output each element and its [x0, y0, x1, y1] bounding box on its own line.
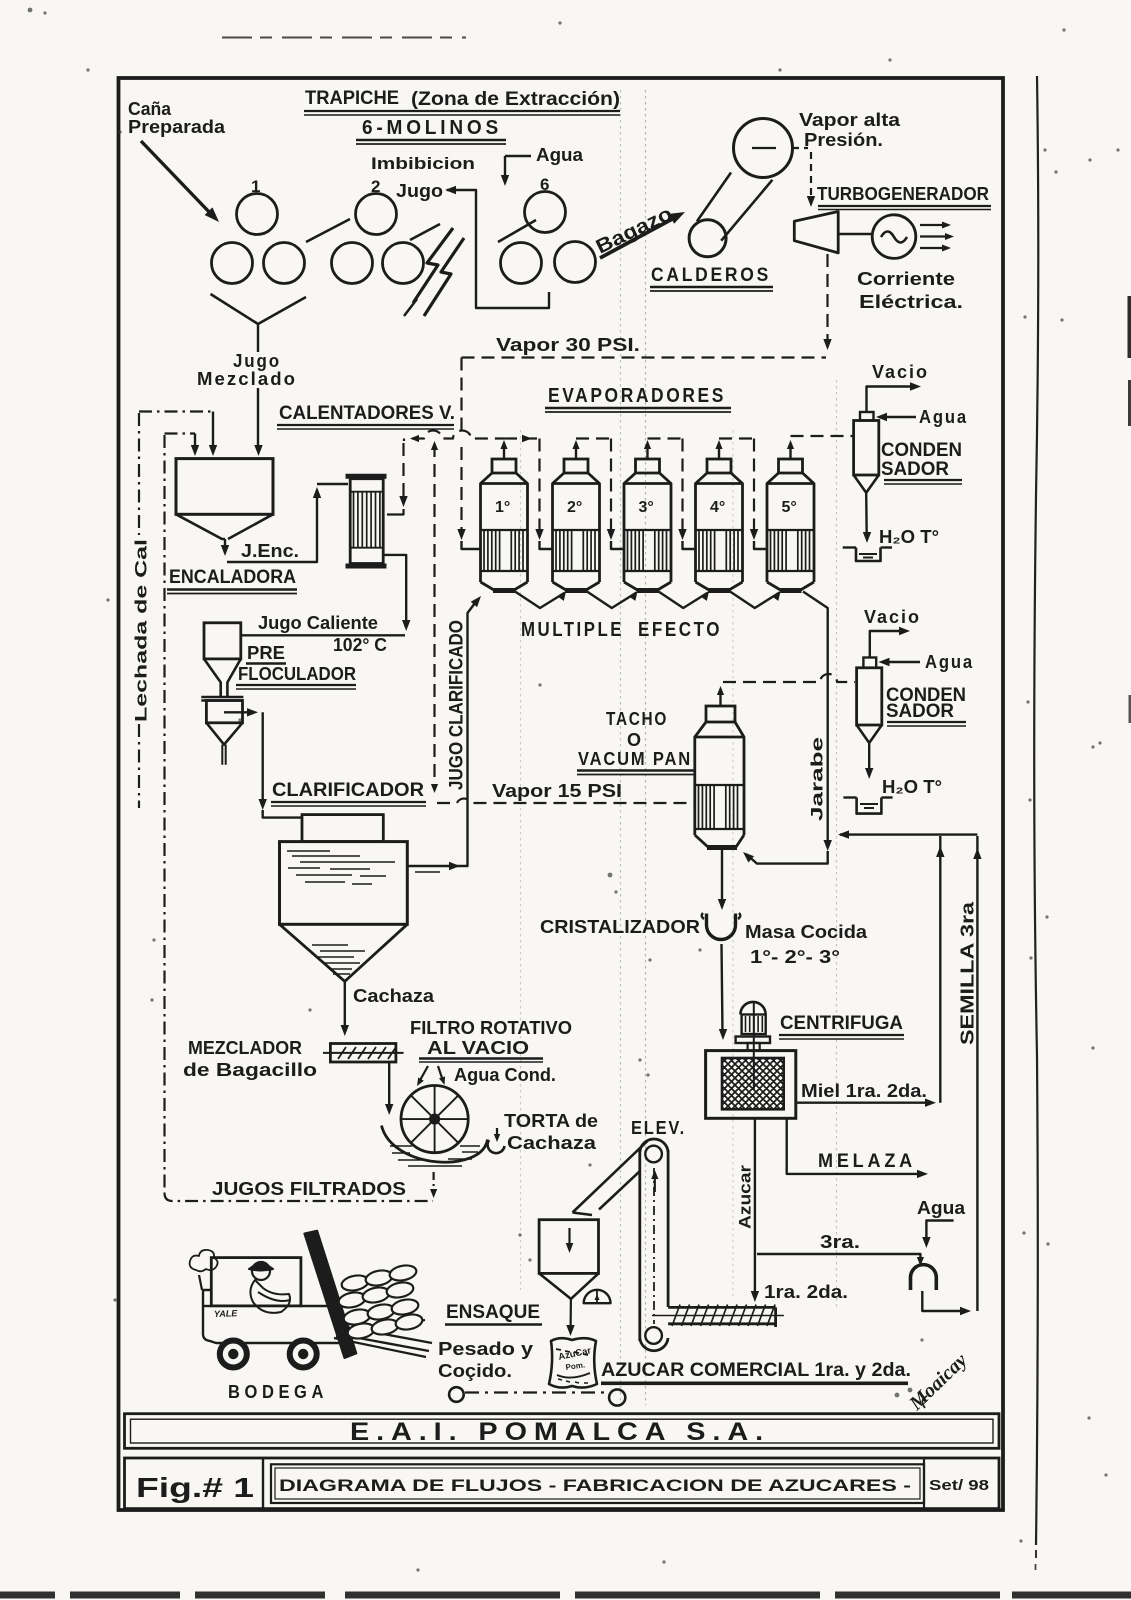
svg-text:Cachaza: Cachaza — [507, 1133, 597, 1153]
svg-text:102° C: 102° C — [333, 635, 387, 655]
svg-text:CALENTADORES V.: CALENTADORES V. — [279, 403, 455, 424]
svg-text:Miel 1ra. 2da.: Miel 1ra. 2da. — [801, 1081, 927, 1101]
svg-text:Jarabe: Jarabe — [808, 737, 827, 821]
svg-text:5°: 5° — [782, 499, 797, 516]
svg-text:H₂O T°: H₂O T° — [879, 527, 939, 547]
svg-text:ENSAQUE: ENSAQUE — [446, 1302, 540, 1323]
svg-text:Set/ 98: Set/ 98 — [929, 1477, 989, 1494]
svg-text:Cachaza: Cachaza — [353, 986, 435, 1006]
svg-text:CENTRIFUGA: CENTRIFUGA — [780, 1013, 903, 1034]
svg-text:JUGO CLARIFICADO: JUGO CLARIFICADO — [446, 620, 468, 790]
svg-text:Vapor 30 PSI.: Vapor 30 PSI. — [496, 335, 640, 355]
svg-text:FILTRO ROTATIVO: FILTRO ROTATIVO — [410, 1018, 572, 1038]
svg-text:DIAGRAMA DE FLUJOS - FABRICA: DIAGRAMA DE FLUJOS - FABRICACION DE AZUC… — [279, 1476, 911, 1495]
svg-text:SADOR: SADOR — [881, 459, 949, 480]
svg-text:AL VACIO: AL VACIO — [427, 1038, 529, 1058]
svg-text:CRISTALIZADOR: CRISTALIZADOR — [540, 917, 700, 937]
svg-text:AZUCAR COMERCIAL 1ra. y 2da.: AZUCAR COMERCIAL 1ra. y 2da. — [601, 1360, 911, 1381]
svg-text:Imbibicion: Imbibicion — [371, 154, 475, 173]
svg-text:Coçido.: Coçido. — [438, 1361, 512, 1381]
svg-text:MEZCLADOR: MEZCLADOR — [188, 1038, 302, 1058]
svg-text:Eléctrica.: Eléctrica. — [859, 292, 963, 312]
svg-text:E.A.I. POMALCA S.A.: E.A.I. POMALCA S.A. — [350, 1418, 770, 1446]
svg-text:TURBOGENERADOR: TURBOGENERADOR — [817, 184, 989, 204]
svg-text:H₂O T°: H₂O T° — [882, 777, 942, 797]
svg-text:Azucar: Azucar — [736, 1165, 755, 1229]
svg-text:6-MOLINOS: 6-MOLINOS — [362, 117, 502, 139]
svg-text:MULTIPLE: MULTIPLE — [521, 619, 624, 641]
svg-text:Agua Cond.: Agua Cond. — [454, 1065, 556, 1085]
svg-text:Corriente: Corriente — [857, 269, 955, 289]
svg-text:SEMILLA 3ra: SEMILLA 3ra — [957, 901, 978, 1045]
svg-text:TRAPICHE: TRAPICHE — [305, 88, 399, 109]
svg-text:TACHO: TACHO — [606, 709, 668, 729]
svg-text:ELEV.: ELEV. — [631, 1118, 686, 1138]
svg-text:FLOCULADOR: FLOCULADOR — [238, 664, 356, 684]
svg-text:Vacio: Vacio — [872, 362, 929, 382]
svg-text:Vacio: Vacio — [864, 607, 921, 627]
svg-text:1ra. 2da.: 1ra. 2da. — [764, 1282, 848, 1302]
svg-text:Mezclado: Mezclado — [197, 369, 297, 389]
svg-text:Jugo Caliente: Jugo Caliente — [258, 613, 378, 633]
svg-text:1: 1 — [251, 177, 260, 196]
svg-text:Lechada de Cal: Lechada de Cal — [132, 539, 151, 722]
svg-text:O: O — [627, 730, 641, 750]
svg-text:Preparada: Preparada — [128, 117, 226, 137]
svg-text:4°: 4° — [710, 499, 725, 516]
svg-text:TORTA de: TORTA de — [504, 1111, 598, 1131]
svg-text:3ra.: 3ra. — [820, 1232, 860, 1252]
svg-text:Pesado y: Pesado y — [438, 1339, 533, 1359]
svg-text:Agua: Agua — [919, 407, 968, 427]
svg-text:Agua: Agua — [917, 1198, 966, 1218]
svg-text:1°- 2°- 3°: 1°- 2°- 3° — [750, 947, 840, 967]
svg-text:3°: 3° — [639, 499, 654, 516]
svg-text:Caña: Caña — [128, 99, 172, 119]
svg-text:Agua: Agua — [925, 652, 974, 672]
svg-text:Agua: Agua — [536, 145, 584, 165]
svg-text:SADOR: SADOR — [886, 701, 954, 722]
svg-text:EFECTO: EFECTO — [638, 619, 722, 641]
svg-text:Presión.: Presión. — [804, 130, 883, 150]
svg-text:6: 6 — [540, 175, 549, 194]
svg-text:2: 2 — [371, 177, 380, 196]
svg-text:Jugo: Jugo — [233, 351, 281, 371]
svg-text:CALDEROS: CALDEROS — [651, 265, 771, 286]
svg-text:EVAPORADORES: EVAPORADORES — [548, 385, 726, 407]
svg-text:PRE: PRE — [247, 643, 285, 663]
svg-text:Vapor 15 PSI: Vapor 15 PSI — [492, 781, 622, 801]
svg-text:CLARIFICADOR: CLARIFICADOR — [272, 780, 424, 801]
svg-text:ENCALADORA: ENCALADORA — [169, 567, 296, 588]
svg-text:Fig.# 1: Fig.# 1 — [136, 1472, 254, 1503]
svg-text:BODEGA: BODEGA — [228, 1382, 328, 1402]
svg-text:VACUM PAN: VACUM PAN — [578, 749, 692, 769]
svg-text:1°: 1° — [495, 499, 510, 516]
svg-text:Jugo: Jugo — [396, 181, 443, 201]
svg-text:MELAZA: MELAZA — [818, 1151, 916, 1172]
svg-text:Vapor alta: Vapor alta — [799, 110, 901, 130]
svg-text:J.Enc.: J.Enc. — [241, 541, 299, 561]
svg-text:(Zona de Extracción): (Zona de Extracción) — [411, 89, 620, 110]
svg-text:CONDEN: CONDEN — [881, 440, 962, 461]
svg-text:Masa Cocida: Masa Cocida — [745, 922, 868, 942]
svg-text:de Bagacillo: de Bagacillo — [183, 1060, 317, 1080]
svg-text:JUGOS FILTRADOS: JUGOS FILTRADOS — [212, 1179, 406, 1199]
svg-text:2°: 2° — [567, 499, 582, 516]
svg-text:YALE: YALE — [214, 1308, 239, 1319]
